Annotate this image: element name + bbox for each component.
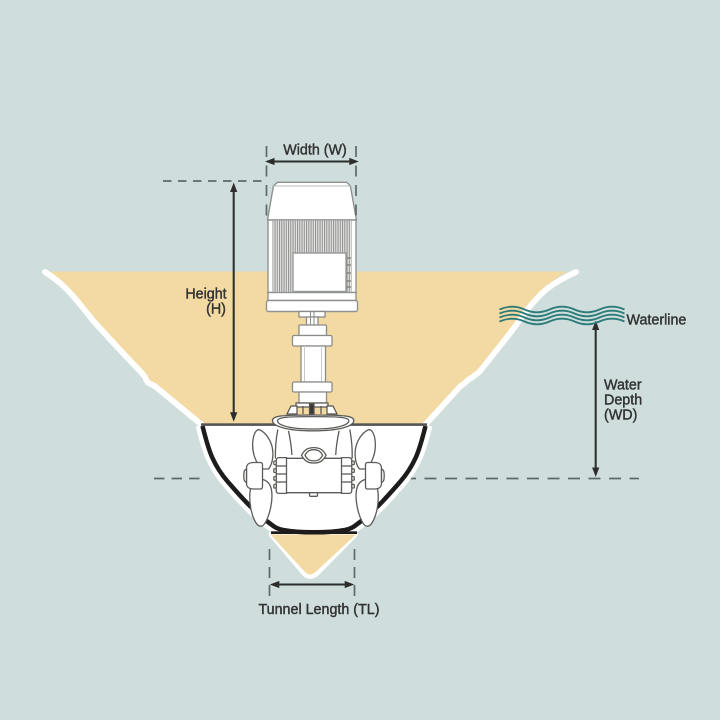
svg-text:Height: Height [185,287,226,303]
svg-text:Width (W): Width (W) [283,143,347,159]
svg-text:Depth: Depth [604,393,642,409]
svg-text:(WD): (WD) [604,408,637,424]
svg-text:(H): (H) [206,302,226,318]
svg-text:Waterline: Waterline [627,313,687,329]
svg-text:Water: Water [604,378,642,394]
svg-text:Tunnel Length (TL): Tunnel Length (TL) [258,602,379,618]
